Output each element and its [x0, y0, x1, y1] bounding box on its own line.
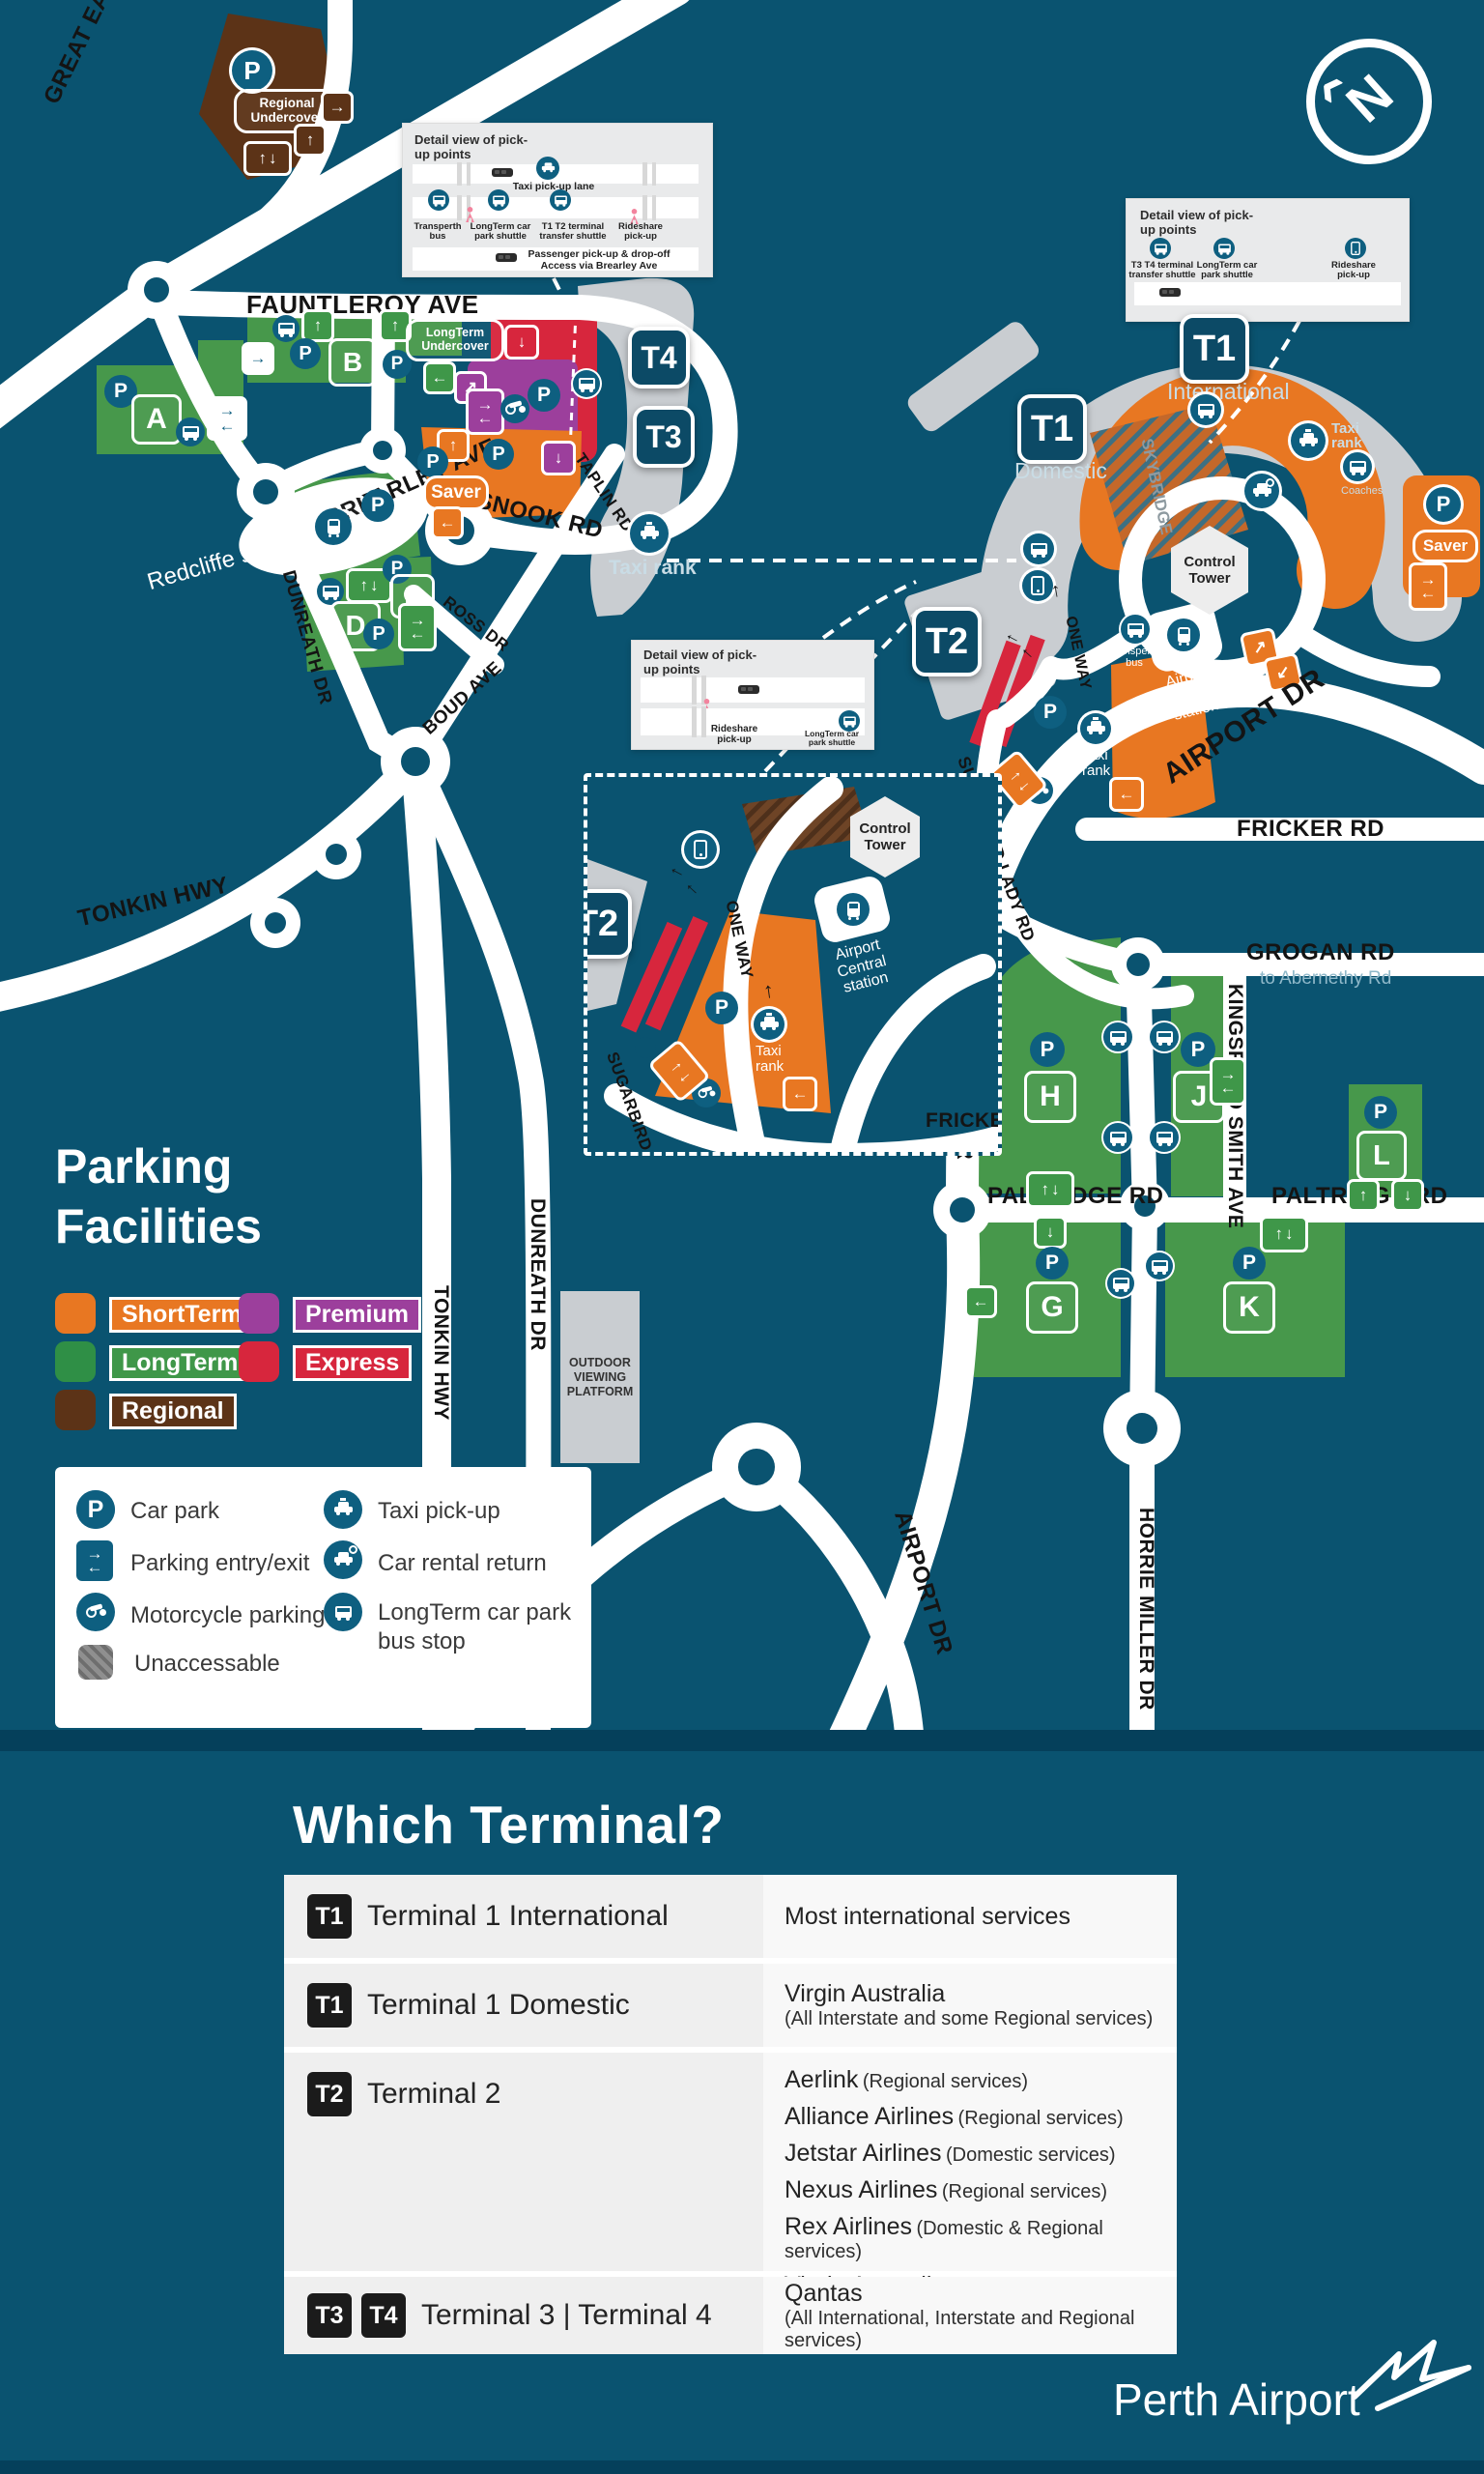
brand-name: Perth Airport	[1113, 2373, 1360, 2426]
service-subtext: (All Interstate and some Regional servic…	[785, 2008, 1177, 2030]
label-premium: Premium	[293, 1297, 421, 1333]
label-shortterm: ShortTerm	[109, 1297, 255, 1333]
car-park-icon: P	[417, 446, 448, 477]
control-tower-label: Control Tower	[846, 814, 924, 860]
rideshare-phone-icon	[684, 833, 717, 866]
saver-badge: Saver	[1413, 530, 1478, 562]
taxi-rank-label: Taxi rank	[1331, 421, 1374, 450]
bus-icon	[428, 189, 449, 211]
road-label-paltridge-w: PALTRIDGE RD	[987, 1183, 1163, 1210]
car-park-h-badge: H	[1024, 1071, 1076, 1123]
legend-unaccessable-icon	[78, 1645, 113, 1680]
exit-arrow-box: ←	[964, 1285, 997, 1318]
road-label-tonkin-vert: TONKIN HWY	[429, 1285, 452, 1421]
which-terminal-table: T1 Terminal 1 International Most interna…	[284, 1875, 1177, 2354]
taxi-rank-icon	[754, 1009, 785, 1040]
road-label-dunreath-vert: DUNREATH DR	[526, 1198, 549, 1351]
road-label-grogan: GROGAN RD	[1246, 939, 1395, 966]
exit-arrow-box: ←	[1109, 777, 1144, 812]
label-regional: Regional	[109, 1394, 237, 1429]
entry-arrow-box: ↑	[294, 124, 327, 157]
bus-stop-icon	[272, 315, 300, 342]
motorcycle-parking-icon	[500, 394, 529, 423]
transperth-bus-label: Transperth bus	[1103, 646, 1165, 669]
terminal-name: Terminal 1 International	[367, 1900, 669, 1933]
separator-band	[0, 1730, 1484, 1751]
car-park-icon: P	[705, 992, 738, 1024]
parking-facilities-title-2: Facilities	[55, 1198, 262, 1254]
swatch-express	[239, 1341, 279, 1382]
bus-stop-icon	[1150, 1123, 1179, 1152]
legend-taxi-label: Taxi pick-up	[378, 1498, 500, 1525]
entry-exit-arrows: →←	[1210, 1057, 1246, 1106]
terminal-t4-badge: T4	[628, 327, 690, 388]
legend-taxi-icon	[324, 1490, 362, 1529]
exit-arrow-box: ↓	[1034, 1216, 1067, 1249]
bus-stop-icon	[1103, 1022, 1132, 1051]
exit-arrow-box: ↓	[1391, 1179, 1424, 1212]
coaches-label: Coaches	[1341, 485, 1383, 497]
car-park-icon: P	[1034, 696, 1067, 729]
terminal-t1-international-badge: T1	[1180, 314, 1249, 384]
car-icon	[1159, 288, 1181, 297]
bottom-band	[0, 2460, 1484, 2474]
car-park-icon: P	[1036, 1247, 1069, 1280]
legend-bus-stop-icon	[324, 1593, 362, 1631]
entry-arrow-box: ↑	[301, 309, 334, 342]
airport-map: P Regional Undercover → ↑↓ ↑ GREAT EASTE…	[0, 0, 1484, 1732]
table-row-t2: T2 Terminal 2 Aerlink (Regional services…	[284, 2053, 1177, 2271]
transperth-bus-icon	[1121, 615, 1150, 644]
car-park-icon: P	[483, 439, 514, 470]
legend-entry-exit-label: Parking entry/exit	[130, 1550, 309, 1577]
car-park-icon: P	[1364, 1096, 1397, 1129]
service-subtext: (All International, Interstate and Regio…	[785, 2308, 1177, 2352]
service-text: Most international services	[785, 1903, 1177, 1931]
entry-exit-arrows: ↑↓	[1026, 1171, 1074, 1208]
car-park-g-badge: G	[1026, 1281, 1078, 1334]
table-row-t3-t4: T3 T4 Terminal 3 | Terminal 4 Qantas (Al…	[284, 2277, 1177, 2354]
legend-panel: P Car park →← Parking entry/exit Motorcy…	[55, 1467, 591, 1728]
terminal-t2-badge: T2	[584, 889, 632, 959]
service-text: Qantas	[785, 2280, 1177, 2308]
t4-badge: T4	[361, 2293, 406, 2338]
grogan-sub-label: to Abernethy Rd	[1260, 968, 1391, 990]
car-park-icon: P	[361, 489, 394, 522]
taxi-rank-label: Taxi rank	[1082, 748, 1125, 779]
parking-facilities-title-1: Parking	[55, 1138, 232, 1194]
legend-bus-stop-label: LongTerm car park bus stop	[378, 1598, 590, 1656]
compass-icon: N ‹	[1306, 39, 1432, 164]
car-park-icon: P	[363, 618, 394, 649]
legend-car-rental-icon	[324, 1540, 362, 1579]
car-park-icon: P	[528, 379, 560, 412]
terminal-t1-domestic-badge: T1	[1017, 394, 1087, 464]
legend-unaccessable-label: Unaccessable	[134, 1651, 280, 1678]
terminal-name: Terminal 1 Domestic	[367, 1989, 630, 2022]
exit-arrow-box: ↓	[541, 441, 576, 475]
entry-exit-arrows: →←	[207, 396, 247, 441]
control-tower-label: Control Tower	[1171, 547, 1248, 593]
outdoor-viewing-platform: OUTDOOR VIEWING PLATFORM	[560, 1291, 640, 1463]
legend-motorcycle-label: Motorcycle parking	[130, 1602, 325, 1629]
exit-arrow-box: →	[321, 91, 354, 124]
terminal-name: Terminal 2	[367, 2072, 500, 2116]
t2-badge: T2	[307, 2072, 352, 2116]
legend-motorcycle-icon	[76, 1593, 115, 1631]
terminal-t2-badge: T2	[912, 607, 982, 676]
airline-item: Aerlink (Regional services)	[785, 2066, 1177, 2094]
swatch-shortterm	[55, 1293, 96, 1334]
entry-exit-arrows: ↑↓	[1260, 1216, 1308, 1252]
longterm-undercover-badge: LongTerm Undercover	[406, 319, 504, 361]
taxi-rank-icon	[1291, 423, 1326, 458]
bus-stop-icon	[1190, 394, 1221, 425]
bus-stop-icon	[1146, 1252, 1173, 1280]
taxi-rank-label: Taxi rank	[609, 557, 697, 580]
taxi-rank-icon	[1080, 713, 1111, 744]
car-park-icon: P	[290, 338, 321, 369]
redcliffe-train-icon	[315, 508, 352, 545]
terminal-t3-badge: T3	[633, 406, 695, 468]
entry-exit-arrows: →←	[466, 388, 504, 435]
bus-stop-icon	[1103, 1123, 1132, 1152]
road-label-horrie: HORRIE MILLER DR	[1134, 1508, 1157, 1711]
perth-airport-plane-icon	[1349, 2327, 1474, 2424]
taxi-rank-label: Taxi rank	[756, 1044, 798, 1075]
exit-arrow-box: ←	[783, 1077, 817, 1111]
car-park-icon: P	[1426, 487, 1461, 522]
legend-car-rental-label: Car rental return	[378, 1550, 547, 1577]
car-park-l-badge: L	[1356, 1131, 1407, 1181]
car-park-k-badge: K	[1223, 1281, 1275, 1334]
label-express: Express	[293, 1345, 412, 1381]
entry-exit-arrows: →←	[1409, 562, 1447, 611]
exit-arrow-box: ←	[423, 361, 456, 394]
exit-arrow-box: →	[242, 342, 274, 375]
airline-item: Nexus Airlines (Regional services)	[785, 2176, 1177, 2204]
bus-icon	[1213, 238, 1235, 259]
coaches-icon	[1343, 452, 1372, 481]
table-row-t1-international: T1 Terminal 1 International Most interna…	[284, 1875, 1177, 1958]
road-label-fricker: FRICKER RD	[1237, 816, 1384, 843]
taxi-rank-icon	[630, 514, 669, 553]
bus-icon	[1150, 238, 1171, 259]
entry-arrow-box: ↑	[1347, 1179, 1380, 1212]
road-label-fricker: FRICKER RD	[926, 1109, 1002, 1133]
detail-view-t1: Detail view of pick-up points T3 T4 term…	[1126, 198, 1410, 322]
bus-icon	[550, 189, 571, 211]
car-park-icon: P	[1233, 1247, 1266, 1280]
t1-badge: T1	[307, 1983, 352, 2028]
car-rental-icon	[1244, 474, 1279, 508]
bus-stop-icon	[176, 417, 205, 446]
car-icon	[738, 685, 759, 694]
swatch-longterm	[55, 1341, 96, 1382]
airline-item: Alliance Airlines (Regional services)	[785, 2103, 1177, 2131]
exit-arrow-box: ←	[431, 506, 464, 539]
t2-detail-enlargement: T2 ONE WAY ↑ ← ← Control Tower Airport C…	[584, 773, 1002, 1156]
bus-stop-icon	[573, 370, 600, 397]
airport-central-train-icon	[837, 893, 870, 926]
road-label-kingsford: KINGSFORD SMITH AVE	[1223, 984, 1246, 1228]
saver-badge: Saver	[423, 475, 489, 510]
person-icon	[466, 207, 474, 222]
detail-view-t3t4: Detail view of pick-up points Taxi pick-…	[402, 123, 713, 277]
t3-badge: T3	[307, 2293, 352, 2338]
terminal-name: Terminal 3 | Terminal 4	[421, 2299, 712, 2332]
car-park-icon: P	[232, 50, 272, 91]
swatch-regional	[55, 1390, 96, 1430]
t1-international-label: International	[1167, 379, 1290, 405]
detail-view-t2: Detail view of pick-up points Rideshare …	[631, 640, 874, 750]
bus-stop-icon	[1150, 1022, 1179, 1051]
car-park-b-badge: B	[328, 338, 377, 387]
entry-exit-arrows: →←	[398, 603, 437, 651]
service-text: Virgin Australia	[785, 1980, 1177, 2008]
rideshare-phone-icon	[1345, 238, 1366, 259]
airport-central-train-icon	[1167, 618, 1200, 651]
rideshare-phone-icon	[1022, 570, 1053, 601]
legend-car-park-icon: P	[76, 1490, 115, 1529]
legend-entry-exit-icon: →←	[76, 1540, 113, 1581]
table-row-t1-domestic: T1 Terminal 1 Domestic Virgin Australia …	[284, 1964, 1177, 2047]
swatch-premium	[239, 1293, 279, 1334]
car-park-a-badge: A	[131, 394, 182, 445]
car-park-icon: P	[1030, 1032, 1065, 1067]
airline-item: Jetstar Airlines (Domestic services)	[785, 2140, 1177, 2168]
bus-icon	[488, 189, 509, 211]
entry-exit-arrows: ↑↓	[243, 141, 292, 176]
t1-domestic-label: Domestic	[1014, 458, 1107, 484]
airline-item: Rex Airlines (Domestic & Regional servic…	[785, 2213, 1177, 2263]
label-longterm: LongTerm	[109, 1345, 250, 1381]
bus-stop-icon	[1023, 533, 1054, 564]
car-icon	[496, 253, 517, 262]
legend-car-park-label: Car park	[130, 1498, 219, 1525]
car-icon	[492, 168, 513, 177]
which-terminal-title: Which Terminal?	[293, 1794, 725, 1855]
t1-badge: T1	[307, 1894, 352, 1939]
taxi-icon	[536, 157, 559, 180]
bus-stop-icon	[1107, 1270, 1134, 1297]
entry-arrow-box: ↓	[504, 325, 539, 360]
